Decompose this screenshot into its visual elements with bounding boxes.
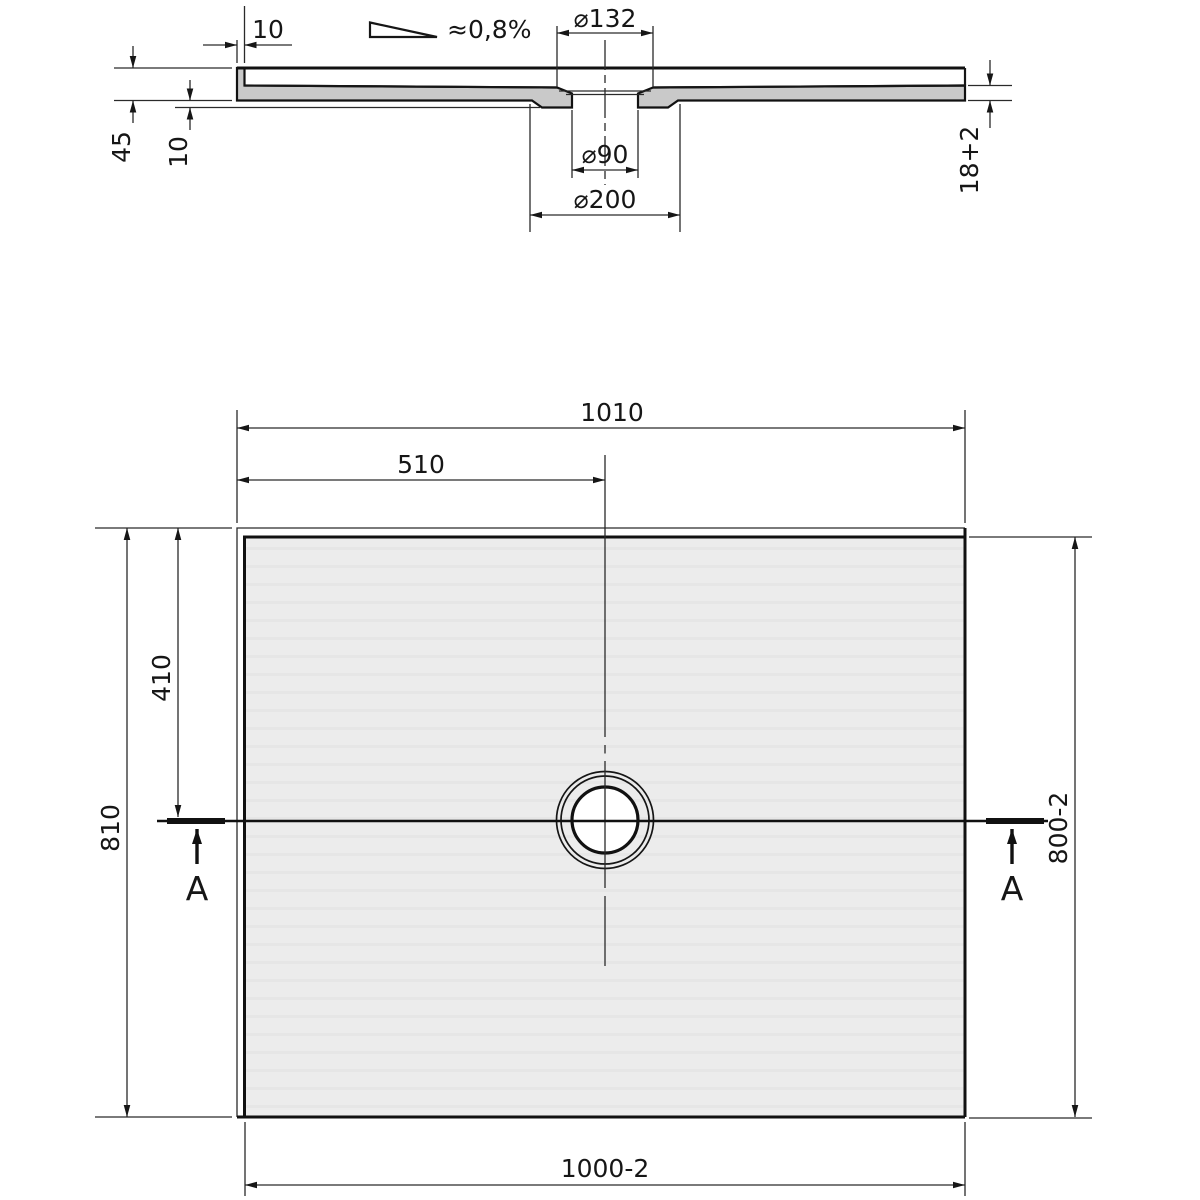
shower-tray-technical-drawing: 10 45 10 18+2 [0, 0, 1200, 1200]
dim-overall-width: 1010 [237, 398, 965, 523]
section-label-left: A [186, 869, 209, 908]
dim-label-410: 410 [147, 654, 176, 702]
dim-label-510: 510 [397, 450, 445, 479]
slope-triangle-icon [370, 23, 437, 38]
dim-label-800-2: 800-2 [1044, 792, 1073, 865]
section-view: 10 45 10 18+2 [107, 4, 1012, 232]
dim-hole-diameter: ⌀90 [572, 110, 638, 178]
section-label-right: A [1001, 869, 1024, 908]
dim-label-boss-10: 10 [164, 136, 193, 168]
dim-inner-depth: 800-2 [969, 537, 1092, 1118]
drawing-canvas: 10 45 10 18+2 [0, 0, 1200, 1200]
plan-view: A A 1010 510 810 410 [95, 398, 1092, 1196]
dim-label-d90: ⌀90 [582, 140, 629, 169]
section-cut-right [638, 86, 965, 108]
dim-label-d132: ⌀132 [574, 4, 637, 33]
dim-wall-thickness: 10 [203, 6, 292, 63]
dim-drain-offset-x: 510 [237, 450, 605, 480]
dim-label-height-45: 45 [107, 131, 136, 163]
dim-inner-width: 1000-2 [245, 1122, 965, 1196]
dim-drain-offset-y: 410 [147, 528, 178, 817]
dim-label-edge-18-2: 18+2 [955, 126, 984, 195]
dim-label-810: 810 [96, 804, 125, 852]
dim-label-1000-2: 1000-2 [561, 1154, 650, 1183]
dim-label-d200: ⌀200 [574, 185, 637, 214]
dim-edge-thickness: 18+2 [955, 60, 1012, 194]
slope-indicator: ≈0,8% [370, 15, 531, 44]
dim-label-1010: 1010 [580, 398, 644, 427]
dim-label-wall-10: 10 [252, 15, 284, 44]
slope-label: ≈0,8% [447, 15, 531, 44]
